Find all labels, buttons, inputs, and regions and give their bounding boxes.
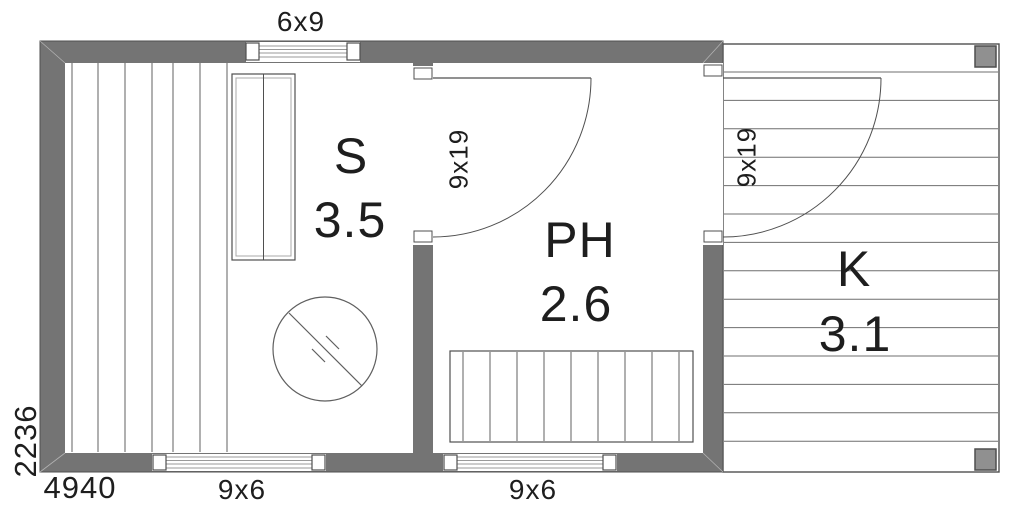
door-size-label-terrace: 9x19: [732, 127, 763, 187]
dimension-width: 4940: [44, 470, 117, 506]
window-size-label-top: 6x9: [277, 6, 325, 38]
terrace-post-top-right: [975, 46, 996, 67]
floor-plan: S 3.5 PH 2.6 K 3.1 6x9 9x6 9x6 9x19 9x19…: [0, 0, 1024, 514]
room-area-terrace: 3.1: [819, 305, 892, 363]
room-label-washroom: PH: [544, 211, 615, 269]
window-bottom-left: [152, 454, 326, 471]
window-top: [246, 42, 360, 62]
terrace-post-bottom-right: [975, 449, 996, 470]
dimension-depth: 2236: [8, 405, 44, 478]
room-label-terrace: K: [837, 240, 871, 298]
window-size-label-bottom-left: 9x6: [218, 474, 266, 506]
room-area-washroom: 2.6: [540, 275, 613, 333]
room-label-sauna: S: [334, 127, 368, 185]
room-area-sauna: 3.5: [314, 191, 387, 249]
window-size-label-bottom-right: 9x6: [509, 474, 557, 506]
sauna-bench: [232, 74, 295, 260]
window-bottom-right: [443, 454, 617, 471]
door-size-label-sauna: 9x19: [444, 129, 475, 189]
